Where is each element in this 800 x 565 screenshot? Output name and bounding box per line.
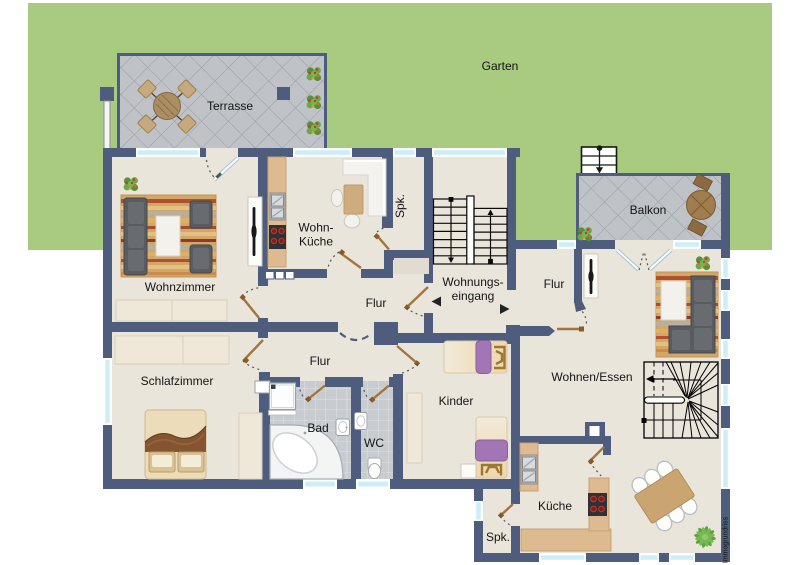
svg-text:Küche: Küche (299, 235, 333, 249)
svg-text:Küche: Küche (538, 499, 572, 513)
svg-text:Flur: Flur (544, 277, 565, 291)
svg-text:Kinder: Kinder (439, 394, 474, 408)
svg-text:Wohnungs-: Wohnungs- (442, 275, 503, 289)
svg-text:Wohnzimmer: Wohnzimmer (145, 280, 215, 294)
svg-text:Schlafzimmer: Schlafzimmer (141, 374, 214, 388)
svg-text:Spk.: Spk. (486, 530, 510, 544)
svg-text:Wohnen/Essen: Wohnen/Essen (551, 370, 632, 384)
svg-text:Flur: Flur (366, 296, 387, 310)
svg-text:Wohn-: Wohn- (298, 221, 333, 235)
svg-text:Balkon: Balkon (630, 203, 667, 217)
svg-text:Flur: Flur (310, 354, 331, 368)
svg-text:Terrasse: Terrasse (207, 99, 253, 113)
svg-text:Spk.: Spk. (393, 194, 407, 218)
svg-text:eingang: eingang (452, 289, 495, 303)
svg-text:Garten: Garten (482, 59, 519, 73)
svg-text:Immogrundriss: Immogrundriss (723, 516, 730, 563)
svg-text:Bad: Bad (307, 421, 328, 435)
svg-text:WC: WC (364, 436, 384, 450)
